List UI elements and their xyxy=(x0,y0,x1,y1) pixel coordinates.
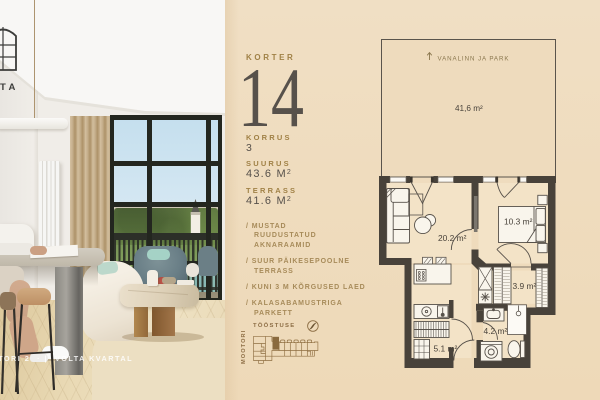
svg-text:4.2 m²: 4.2 m² xyxy=(484,326,508,336)
svg-text:20.2 m²: 20.2 m² xyxy=(438,233,467,243)
svg-text:41,6 m²: 41,6 m² xyxy=(455,104,483,113)
svg-text:10.3 m²: 10.3 m² xyxy=(504,217,533,227)
svg-text:5.1 m²: 5.1 m² xyxy=(434,344,458,354)
svg-text:VANALINN JA PARK: VANALINN JA PARK xyxy=(438,55,510,62)
svg-text:3.9 m²: 3.9 m² xyxy=(513,281,537,291)
